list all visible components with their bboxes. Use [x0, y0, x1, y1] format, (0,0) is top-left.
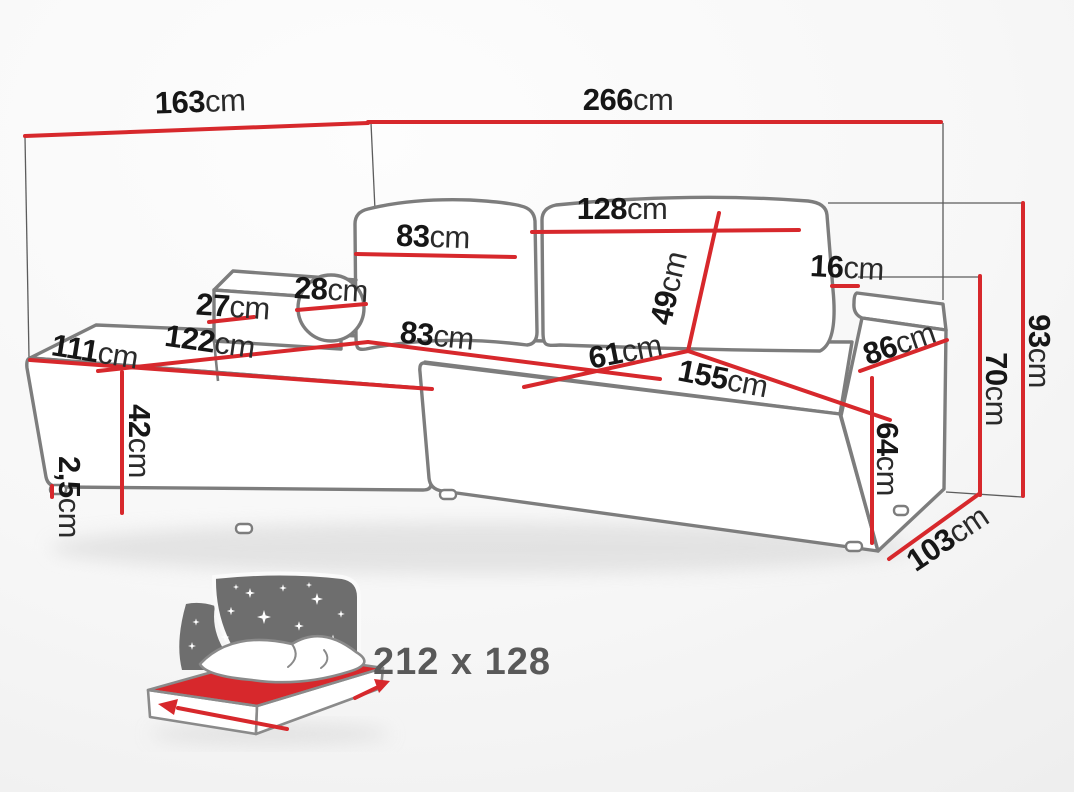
dim-label-27cm: 27cm [195, 286, 271, 326]
dim-label-2-5cm: 2,5cm [52, 456, 87, 538]
dim-label-83cm-backrest: 83cm [395, 218, 470, 256]
diagram-canvas: 163cm 266cm 128cm 83cm 28cm 27cm 111cm 1… [0, 0, 1074, 792]
dim-label-93cm: 93cm [1022, 314, 1057, 388]
dim-line-128 [532, 230, 799, 232]
dim-label-64cm: 64cm [870, 422, 905, 496]
dim-label-128cm: 128cm [577, 191, 668, 226]
dim-label-70cm: 70cm [979, 352, 1014, 426]
dim-label-266cm: 266cm [583, 82, 674, 117]
duvet-pillows [200, 636, 364, 682]
dim-label-163cm: 163cm [154, 82, 246, 120]
sleeping-function-icon: 212 x 128 [148, 574, 551, 735]
dim-line-163 [25, 123, 368, 136]
sofa-dimension-diagram: 163cm 266cm 128cm 83cm 28cm 27cm 111cm 1… [0, 0, 1074, 792]
sofa-drawing [27, 197, 946, 551]
dim-label-16cm: 16cm [809, 248, 885, 287]
dim-label-42cm: 42cm [122, 404, 157, 478]
sleeping-area-size-label: 212 x 128 [373, 641, 551, 683]
dim-label-28cm: 28cm [293, 270, 369, 309]
